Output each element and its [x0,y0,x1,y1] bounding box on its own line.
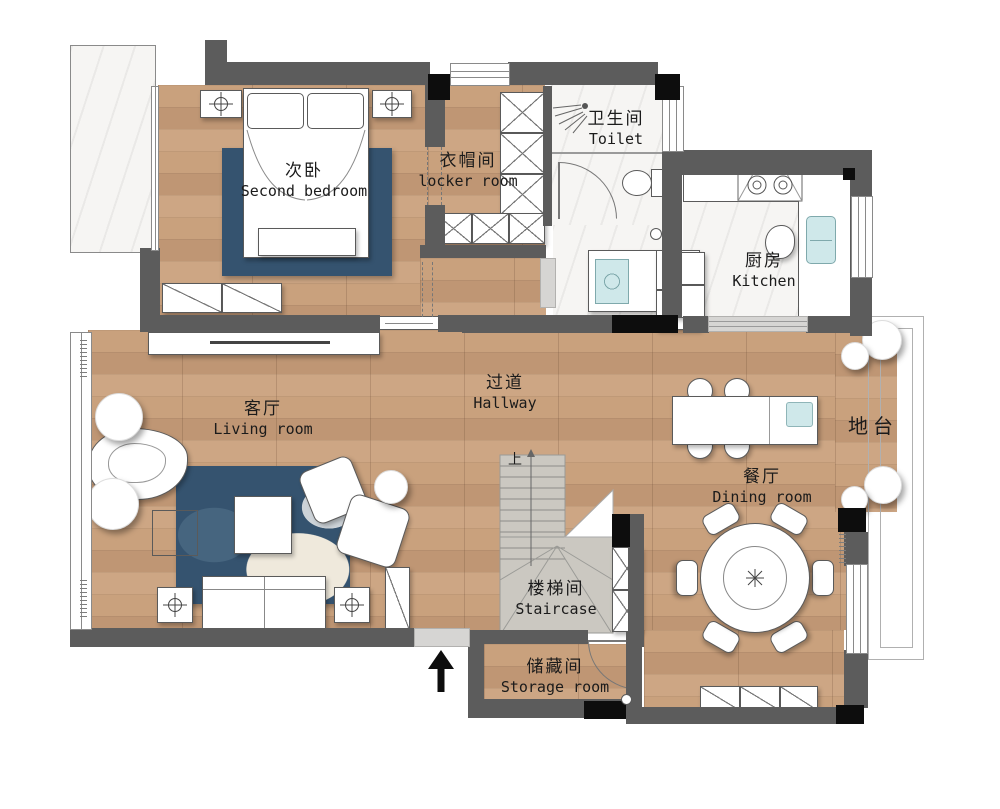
second-bedroom-label-zh: 次卧 [241,160,367,182]
wall [626,707,838,724]
floor-plan: 上 次卧 Second bedroom 衣帽间 locker room 卫生间 … [0,0,1000,809]
wall [844,532,868,566]
door-knob [621,694,632,705]
door-threshold [540,258,556,308]
wall [70,628,416,647]
locker-room-label-zh: 衣帽间 [418,150,517,172]
ceiling-light-icon [339,592,365,618]
wall [683,316,709,333]
staircase-label: 楼梯间 Staircase [515,578,596,620]
door-knob [650,228,662,240]
wall-column [843,168,855,180]
cased-opening-dashed [432,262,434,317]
platform-label-zh: 地台 [848,413,898,439]
curtain-symbol [80,340,87,380]
top-window [450,63,510,86]
storage-room-label: 储藏间 Storage room [501,656,609,698]
wall [844,650,868,708]
plant [374,470,408,504]
wall [140,315,380,332]
wall [628,514,644,647]
locker-room-label: 衣帽间 locker room [418,150,517,192]
wall [468,630,484,710]
kitchen-window [851,196,873,278]
locker-wardrobe-cell [509,213,545,244]
hallway-label-en: Hallway [473,394,536,414]
coffee-table [234,496,292,554]
wall [420,245,546,258]
dining-chair [676,560,698,596]
kitchen-sliding-door [708,316,808,332]
living-room-label: 客厅 Living room [213,398,312,440]
shower-glass-partition [548,152,665,154]
wall-column [655,74,680,100]
bedroom-wardrobe [222,283,282,313]
staircase-label-en: Staircase [515,600,596,620]
ceiling-light-icon [162,592,188,618]
wall [462,315,612,333]
dining-room-label-zh: 餐厅 [712,466,811,488]
wall-column [838,508,866,532]
stairs-up-text: 上 [508,452,522,468]
wall [438,315,464,332]
entry-threshold [414,628,470,647]
curtain-symbol [80,580,87,620]
locker-room-label-en: locker room [418,172,517,192]
hallway-label: 过道 Hallway [473,372,536,414]
plant [841,342,869,370]
plant [95,393,143,441]
platform-label: 地台 [848,413,898,439]
dining-window [846,564,868,654]
washing-machine [595,259,629,304]
ceiling-light-icon [208,91,234,117]
kitchen-sink [806,216,836,264]
stairs-up-label: 上 [508,449,522,469]
toilet-fixture-bowl [622,170,652,196]
sofa [202,576,326,634]
plant [864,466,902,504]
staircase-label-zh: 楼梯间 [515,578,596,600]
balcony-floor [70,45,156,253]
storage-room-label-en: Storage room [501,678,609,698]
wall-column [612,514,630,547]
storage-room-label-zh: 储藏间 [501,656,609,678]
kitchen-label-zh: 厨房 [732,250,795,272]
tv-cabinet [148,332,380,355]
wall [508,62,658,85]
shower-icon [549,100,591,134]
north-arrow-icon [427,650,455,692]
toilet-label-en: Toilet [588,130,645,150]
wall [425,205,445,247]
dining-chair [812,560,834,596]
magazine-rack [385,567,410,630]
wall-column [428,74,450,100]
wall [662,150,682,318]
living-room-label-zh: 客厅 [213,398,312,420]
second-bedroom-label-en: Second bedroom [241,182,367,202]
toilet-label-zh: 卫生间 [588,108,645,130]
wall-column [584,701,626,719]
second-bedroom-label: 次卧 Second bedroom [241,160,367,202]
balcony-bedroom-window [151,86,159,251]
locker-wardrobe-cell [500,92,545,133]
toilet-label: 卫生间 Toilet [588,108,645,150]
cased-opening-dashed [422,262,424,317]
bedroom-sliding-door [378,316,440,330]
plant [87,478,139,530]
dining-room-label-en: Dining room [712,488,811,508]
living-room-label-en: Living room [213,420,312,440]
wall [205,62,430,85]
side-square-table [152,510,198,556]
wall-column [612,315,678,333]
wall [662,150,872,175]
curtain-symbol [839,534,846,564]
dining-room-label: 餐厅 Dining room [712,466,811,508]
kitchen-label: 厨房 Kitchen [732,250,795,292]
locker-wardrobe-cell [472,213,509,244]
wall [543,86,552,226]
kitchen-label-en: Kitchen [732,272,795,292]
wall-column [836,705,864,724]
island-cooktop-pad [786,402,813,427]
wall [806,316,872,333]
wall [468,630,588,644]
hallway-label-zh: 过道 [473,372,536,394]
dining-centerpiece-icon [745,568,765,588]
ceiling-light-icon [379,91,405,117]
bedroom-wardrobe [162,283,222,313]
